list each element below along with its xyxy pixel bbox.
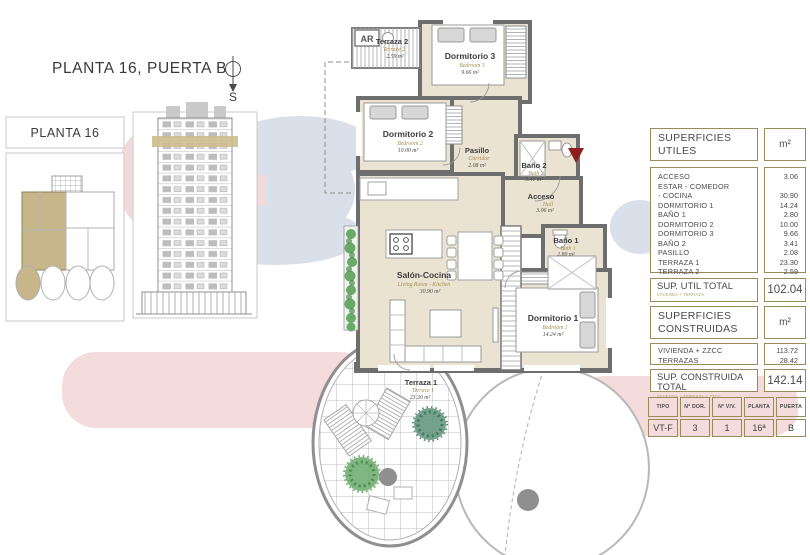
table-value: 23.30 xyxy=(765,258,798,268)
svg-text:Terrace 1: Terrace 1 xyxy=(412,388,434,394)
svg-text:3.06 m²: 3.06 m² xyxy=(535,208,554,214)
room-label: Baño 1 xyxy=(553,236,578,245)
room-label: Terraza 2 xyxy=(376,37,408,46)
floor-16-highlight xyxy=(152,136,238,147)
dining-set xyxy=(447,232,503,280)
utiles-total-value: 102.04 xyxy=(764,278,806,302)
construidas-title: SUPERFICIES CONSTRUIDAS xyxy=(650,306,758,339)
table-row: DORMITORIO 1 xyxy=(658,201,757,211)
table-row: BAÑO 1 xyxy=(658,210,757,220)
table-row: ESTAR - COMEDOR xyxy=(658,182,757,192)
utiles-total-sub: VIVIENDA + TERRAZA xyxy=(657,293,757,298)
svg-text:Bedroom 1: Bedroom 1 xyxy=(542,325,567,331)
construidas-unit: m² xyxy=(764,306,806,339)
planter xyxy=(344,226,358,332)
room-label: Salón-Cocina xyxy=(397,270,452,280)
construidas-values: 113.72 28.42 xyxy=(764,343,806,365)
svg-text:30.90 m²: 30.90 m² xyxy=(419,289,441,295)
room-label: Dormitorio 3 xyxy=(445,51,496,61)
svg-text:9.66 m²: 9.66 m² xyxy=(461,70,479,76)
compass-south-label: S xyxy=(229,90,237,104)
table-value: 30.90 xyxy=(765,191,798,201)
table-row: ACCESO xyxy=(658,172,757,182)
svg-text:2.80 m²: 2.80 m² xyxy=(557,252,575,258)
unit-info-header: Nº DOR. xyxy=(680,397,710,417)
svg-text:2.08 m²: 2.08 m² xyxy=(468,163,486,169)
table-value: 2.59 xyxy=(765,267,798,277)
key-plan-title: PLANTA 16 xyxy=(31,126,100,140)
room-label: Terraza 1 xyxy=(405,378,437,387)
unit-info-header: TIPO xyxy=(648,397,678,417)
utiles-rows: ACCESO ESTAR - COMEDOR - COCINA DORMITOR… xyxy=(650,167,758,273)
table-value: 2.08 xyxy=(765,248,798,258)
table-row: - COCINA xyxy=(658,191,757,201)
plan-sheet: AR Terraza 2 Terrace 2 2.59 m² Dormitori… xyxy=(0,0,810,555)
terrace-dot xyxy=(379,468,397,486)
table-value: 113.72 xyxy=(765,346,798,356)
svg-text:23.30 m²: 23.30 m² xyxy=(410,395,431,401)
unit-info-value: 16ª xyxy=(744,419,774,437)
svg-text:Bedroom 3: Bedroom 3 xyxy=(459,63,484,69)
svg-text:10.00 m²: 10.00 m² xyxy=(398,148,419,154)
table-row: TERRAZAS xyxy=(658,356,757,366)
table-row: TERRAZA 1 xyxy=(658,258,757,268)
room-label: Pasillo xyxy=(465,146,490,155)
svg-text:14.24 m²: 14.24 m² xyxy=(543,331,564,338)
construidas-total-value: 142.14 xyxy=(764,369,806,392)
unit-info-header: PUERTA xyxy=(776,397,806,417)
table-value: 9.66 xyxy=(765,229,798,239)
table-row: PASILLO xyxy=(658,248,757,258)
room-label: Baño 2 xyxy=(521,161,546,170)
svg-text:Living Room - Kitchen: Living Room - Kitchen xyxy=(397,282,451,288)
ar-label: AR xyxy=(361,34,374,44)
svg-text:2.59 m²: 2.59 m² xyxy=(386,54,404,60)
svg-text:3.41 m²: 3.41 m² xyxy=(524,176,543,183)
table-row: VIVIENDA + ZZCC xyxy=(658,346,757,356)
room-label: Acceso xyxy=(528,192,555,201)
construidas-rows: VIVIENDA + ZZCC TERRAZAS xyxy=(650,343,758,365)
svg-text:Terrace 2: Terrace 2 xyxy=(383,47,405,53)
utiles-unit: m² xyxy=(764,128,806,161)
page-title: PLANTA 16, PUERTA B xyxy=(52,60,272,78)
table-row: BAÑO 2 xyxy=(658,239,757,249)
utiles-total-label: SUP. UTIL TOTAL VIVIENDA + TERRAZA xyxy=(650,278,758,302)
table-value xyxy=(765,182,798,192)
table-value: 3.41 xyxy=(765,239,798,249)
construidas-total-label: SUP. CONSTRUIDA TOTAL VIVIENDA + TERRAZA… xyxy=(650,369,758,392)
table-value: 10.00 xyxy=(765,220,798,230)
table-value: 28.42 xyxy=(765,356,798,366)
table-row: DORMITORIO 3 xyxy=(658,229,757,239)
unit-info-header: PLANTA xyxy=(744,397,774,417)
svg-text:Bedroom 2: Bedroom 2 xyxy=(397,141,422,147)
umbrella xyxy=(353,400,379,426)
key-plan xyxy=(16,176,114,300)
table-value: 3.06 xyxy=(765,172,798,182)
unit-info-value: VT-F xyxy=(648,419,678,437)
room-label: Dormitorio 2 xyxy=(383,129,434,139)
utiles-title: SUPERFICIES UTILES xyxy=(650,128,758,161)
unit-info-value: 1 xyxy=(712,419,742,437)
room-label: Dormitorio 1 xyxy=(528,313,579,323)
table-value: 2.80 xyxy=(765,210,798,220)
unit-info-value: 3 xyxy=(680,419,710,437)
table-value: 14.24 xyxy=(765,201,798,211)
utiles-values: 3.06 30.90 14.24 2.80 10.00 9.66 3.41 2.… xyxy=(764,167,806,273)
table-row: TERRAZA 2 xyxy=(658,267,757,277)
unit-info-table: TIPO Nº DOR. Nº VIV. PLANTA PUERTA VT-F … xyxy=(648,397,808,437)
unit-info-value: B xyxy=(776,419,806,437)
svg-text:Corridor: Corridor xyxy=(469,156,491,162)
table-row: DORMITORIO 2 xyxy=(658,220,757,230)
unit-info-header: Nº VIV. xyxy=(712,397,742,417)
